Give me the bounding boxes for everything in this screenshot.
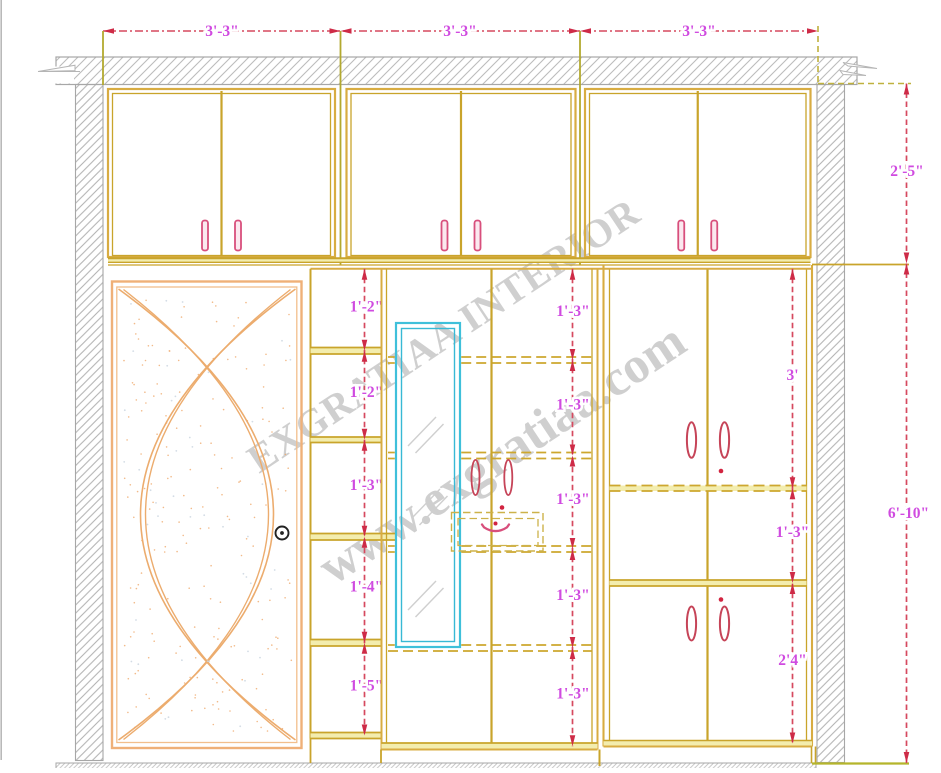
svg-text:3'-3": 3'-3" [682,23,716,40]
svg-text:1'-2": 1'-2" [350,384,384,401]
svg-text:1'-3": 1'-3" [556,396,590,413]
svg-text:6'-10": 6'-10" [888,505,929,522]
svg-text:3': 3' [786,367,798,384]
svg-text:2'-5": 2'-5" [890,163,924,180]
svg-text:3'-3": 3'-3" [205,23,239,40]
svg-text:1'-3": 1'-3" [776,524,810,541]
svg-text:1'-3": 1'-3" [556,686,590,703]
svg-text:1'-4": 1'-4" [350,578,384,595]
svg-text:3'-3": 3'-3" [443,23,477,40]
svg-text:1'-3": 1'-3" [350,477,384,494]
svg-text:1'-2": 1'-2" [350,298,384,315]
svg-text:1'-5": 1'-5" [350,678,384,695]
svg-text:1'-3": 1'-3" [556,587,590,604]
svg-text:2'4": 2'4" [778,652,806,669]
svg-text:1'-3": 1'-3" [556,491,590,508]
svg-text:1'-3": 1'-3" [556,303,590,320]
